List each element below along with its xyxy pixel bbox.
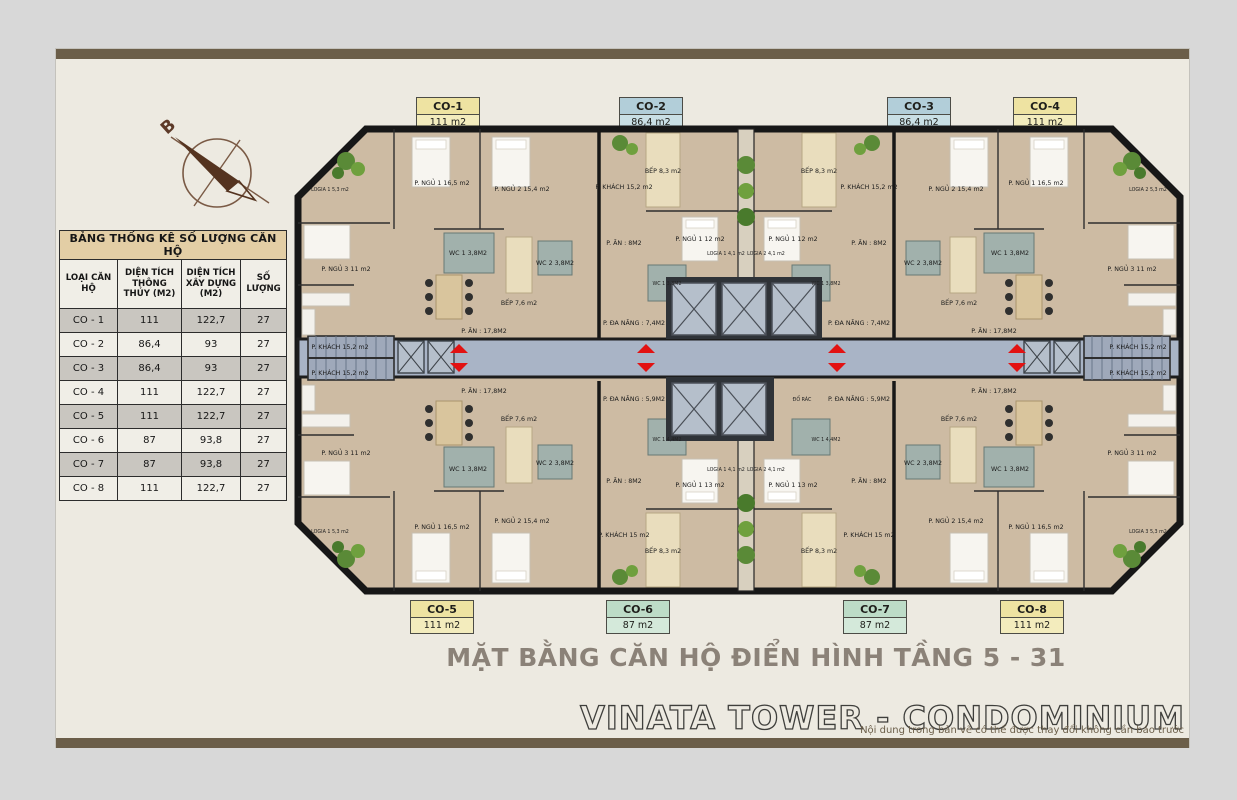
table-row: CO - 286,49327 xyxy=(60,333,287,357)
room-label-text: WC 2 3,8M2 xyxy=(536,260,574,267)
room-label-text: WC 1 3,8M2 xyxy=(991,250,1029,257)
room-label-text: P. ĂN : 8M2 xyxy=(851,238,886,247)
unit-chip-name: CO-8 xyxy=(1001,601,1063,618)
cell-count: 27 xyxy=(241,405,287,429)
cell-gross: 93 xyxy=(182,357,241,381)
table-row: CO - 78793,827 xyxy=(60,453,287,477)
room-label-text: LOGIA 2 4,1 m2 xyxy=(747,467,785,473)
room-label-text: P. KHÁCH 15,2 m2 xyxy=(840,182,897,191)
cell-net: 111 xyxy=(118,309,182,333)
cell-gross: 122,7 xyxy=(182,309,241,333)
cell-type: CO - 3 xyxy=(60,357,118,381)
disclaimer-text: Nội dung trong bản vẽ có thể được thay đ… xyxy=(860,725,1184,736)
room-label-text: P. ĐA NĂNG : 5,9M2 xyxy=(828,394,890,403)
cell-net: 86,4 xyxy=(118,333,182,357)
unit-chip-area: 87 m2 xyxy=(844,618,906,633)
table-row: CO - 1111122,727 xyxy=(60,309,287,333)
cell-count: 27 xyxy=(241,309,287,333)
cell-gross: 93 xyxy=(182,333,241,357)
cell-type: CO - 8 xyxy=(60,477,118,501)
room-label-text: P. ĂN : 17,8M2 xyxy=(461,326,506,335)
unit-chip-co5: CO-5111 m2 xyxy=(410,600,474,634)
plan-title: MẶT BẰNG CĂN HỘ ĐIỂN HÌNH TẦNG 5 - 31 xyxy=(376,643,1136,672)
room-label-text: WC 2 3,8M2 xyxy=(904,460,942,467)
cell-net: 86,4 xyxy=(118,357,182,381)
room-label-text: LOGIA 1 5,3 m2 xyxy=(311,187,349,193)
room-label-text: P. ĐA NĂNG : 5,9M2 xyxy=(603,394,665,403)
north-label: B xyxy=(157,115,180,139)
room-label-text: P. ĂN : 8M2 xyxy=(851,476,886,485)
col-header-type: LOẠI CĂN HỘ xyxy=(60,260,118,309)
cell-type: CO - 7 xyxy=(60,453,118,477)
cell-gross: 122,7 xyxy=(182,381,241,405)
cell-net: 87 xyxy=(118,453,182,477)
room-label-text: P. KHÁCH 15 m2 xyxy=(843,530,894,539)
room-label-text: WC 1 3,8M2 xyxy=(652,281,681,287)
col-header-count: SỐ LƯỢNG xyxy=(241,260,287,309)
cell-type: CO - 1 xyxy=(60,309,118,333)
unit-chip-area: 87 m2 xyxy=(607,618,669,633)
cell-type: CO - 4 xyxy=(60,381,118,405)
room-label-text: WC 1 3,8M2 xyxy=(449,250,487,257)
room-label-text: LOGIA 1 5,3 m2 xyxy=(311,529,349,535)
room-label-text: P. ĂN : 17,8M2 xyxy=(461,386,506,395)
room-label-text: P. ĐA NĂNG : 7,4M2 xyxy=(603,318,665,327)
unit-chip-name: CO-5 xyxy=(411,601,473,618)
room-label-text: WC 2 3,8M2 xyxy=(536,460,574,467)
drawing-sheet: B BẢNG THỐNG KÊ SỐ LƯỢNG CĂN HỘ LOẠI CĂN… xyxy=(55,48,1190,748)
room-label-text: LOGIA 3 5,3 m2 xyxy=(1129,529,1167,535)
unit-chip-name: CO-7 xyxy=(844,601,906,618)
room-label-text: LOGIA 2 5,3 m2 xyxy=(1129,187,1167,193)
room-label-text: P. KHÁCH 15,2 m2 xyxy=(311,368,368,377)
cell-net: 111 xyxy=(118,477,182,501)
room-label-text: WC 1 3,8M2 xyxy=(811,281,840,287)
col-header-gross: DIỆN TÍCH XÂY DỰNG (M2) xyxy=(182,260,241,309)
floor-plan: P. NGỦ 1 16,5 m2 P. NGỦ 2 15,4 m2 P. NGỦ… xyxy=(292,125,1186,595)
compass: B xyxy=(149,111,281,229)
table-row: CO - 8111122,727 xyxy=(60,477,287,501)
room-label-text: LOGIA 2 4,1 m2 xyxy=(747,251,785,257)
cell-gross: 122,7 xyxy=(182,405,241,429)
room-label-text: P. ĂN : 17,8M2 xyxy=(971,386,1016,395)
elevator-bank-top xyxy=(666,277,822,339)
elevator-bank-bottom xyxy=(666,377,774,441)
unit-chip-co8: CO-8111 m2 xyxy=(1000,600,1064,634)
room-label-text: WC 1 3,8M2 xyxy=(449,466,487,473)
room-label-text: P. ĐA NĂNG : 7,4M2 xyxy=(828,318,890,327)
unit-chip-name: CO-4 xyxy=(1014,98,1076,115)
cell-count: 27 xyxy=(241,453,287,477)
top-frame-bar xyxy=(56,49,1189,59)
unit-chip-area: 111 m2 xyxy=(411,618,473,633)
unit-chip-name: CO-2 xyxy=(620,98,682,115)
cell-net: 87 xyxy=(118,429,182,453)
room-label-text: P. KHÁCH 15,2 m2 xyxy=(311,342,368,351)
table-row: CO - 68793,827 xyxy=(60,429,287,453)
cell-net: 111 xyxy=(118,405,182,429)
cell-type: CO - 6 xyxy=(60,429,118,453)
room-label-text: LOGIA 1 4,1 m2 xyxy=(707,251,745,257)
cell-type: CO - 2 xyxy=(60,333,118,357)
table-row: CO - 5111122,727 xyxy=(60,405,287,429)
room-label-text: P. ĂN : 17,8M2 xyxy=(971,326,1016,335)
cell-count: 27 xyxy=(241,381,287,405)
room-label-text: WC 2 3,8M2 xyxy=(904,260,942,267)
cell-count: 27 xyxy=(241,429,287,453)
cell-count: 27 xyxy=(241,333,287,357)
unit-chip-co6: CO-687 m2 xyxy=(606,600,670,634)
table-row: CO - 386,49327 xyxy=(60,357,287,381)
room-label-text: P. KHÁCH 15,2 m2 xyxy=(1109,368,1166,377)
cell-net: 111 xyxy=(118,381,182,405)
stats-table-title: BẢNG THỐNG KÊ SỐ LƯỢNG CĂN HỘ xyxy=(60,231,287,260)
room-label-text: P. KHÁCH 15,2 m2 xyxy=(1109,342,1166,351)
room-label-text: WC 1 4,4M2 xyxy=(811,437,840,443)
unit-chip-co7: CO-787 m2 xyxy=(843,600,907,634)
room-label-text: P. ĂN : 8M2 xyxy=(606,238,641,247)
unit-chip-name: CO-6 xyxy=(607,601,669,618)
room-label-text: P. KHÁCH 15,2 m2 xyxy=(595,182,652,191)
bottom-frame-bar xyxy=(56,738,1189,748)
cell-count: 27 xyxy=(241,477,287,501)
unit-chip-name: CO-3 xyxy=(888,98,950,115)
apartment-stats-table: BẢNG THỐNG KÊ SỐ LƯỢNG CĂN HỘ LOẠI CĂN H… xyxy=(59,230,287,501)
unit-chip-name: CO-1 xyxy=(417,98,479,115)
cell-type: CO - 5 xyxy=(60,405,118,429)
room-label-text: P. KHÁCH 15 m2 xyxy=(598,530,649,539)
cell-gross: 93,8 xyxy=(182,429,241,453)
room-label-text: P. ĂN : 8M2 xyxy=(606,476,641,485)
col-header-net: DIỆN TÍCH THÔNG THỦY (M2) xyxy=(118,260,182,309)
room-label-text: WC 1 4,4M2 xyxy=(652,437,681,443)
cell-gross: 93,8 xyxy=(182,453,241,477)
unit-chip-area: 111 m2 xyxy=(1001,618,1063,633)
cell-count: 27 xyxy=(241,357,287,381)
cell-gross: 122,7 xyxy=(182,477,241,501)
room-label-text: LOGIA 1 4,1 m2 xyxy=(707,467,745,473)
room-label-text: WC 1 3,8M2 xyxy=(991,466,1029,473)
table-row: CO - 4111122,727 xyxy=(60,381,287,405)
